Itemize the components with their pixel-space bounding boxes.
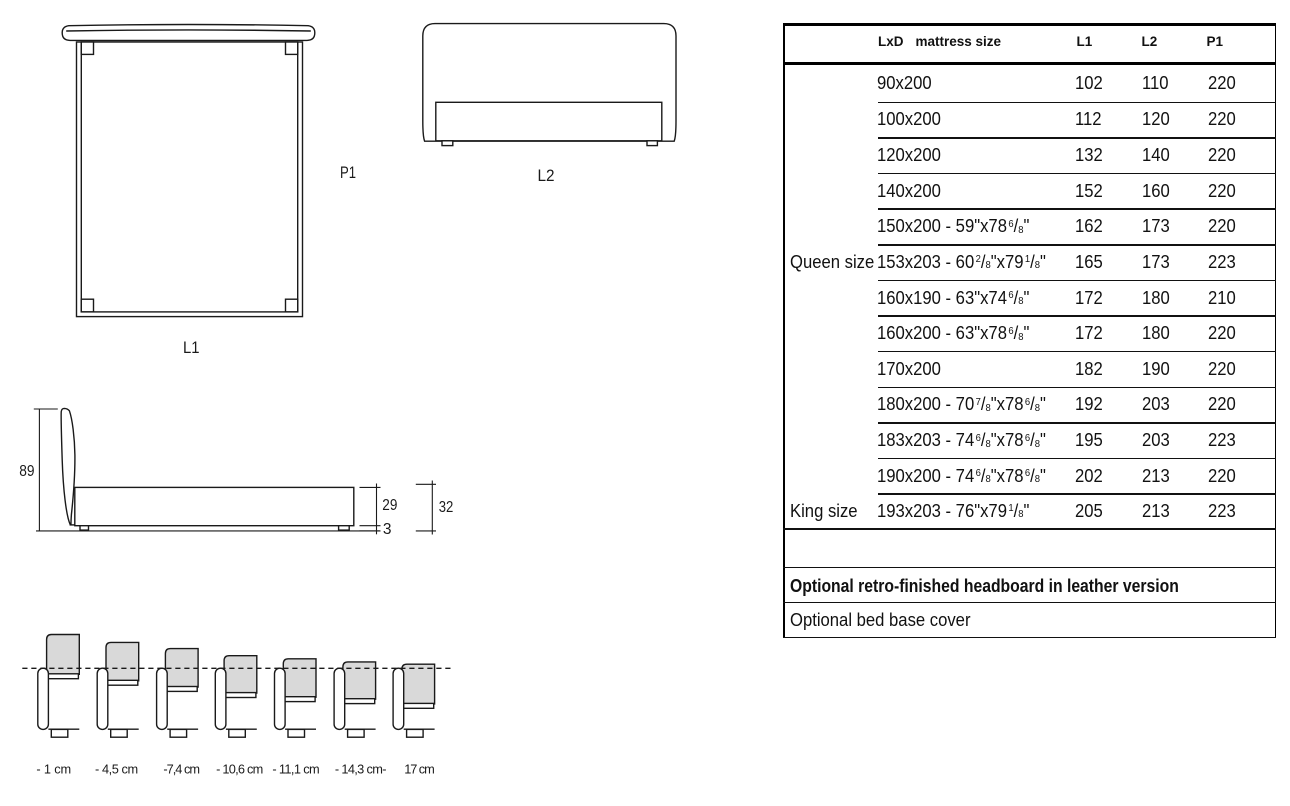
svg-text:- 4,5 cm: - 4,5 cm <box>95 762 138 777</box>
svg-text:17 cm: 17 cm <box>404 762 435 777</box>
svg-text:P1: P1 <box>340 163 356 182</box>
svg-text:L1: L1 <box>183 338 200 357</box>
svg-text:89: 89 <box>19 463 34 480</box>
svg-text:- 1 cm: - 1 cm <box>36 762 71 777</box>
svg-text:32: 32 <box>439 499 454 516</box>
svg-text:29: 29 <box>382 497 397 514</box>
svg-text:L2: L2 <box>538 166 555 185</box>
svg-text:3: 3 <box>383 521 392 538</box>
svg-text:- 14,3 cm-: - 14,3 cm- <box>335 762 387 777</box>
svg-text:- 10,6 cm: - 10,6 cm <box>216 762 263 777</box>
svg-text:-7,4 cm: -7,4 cm <box>163 762 200 777</box>
svg-text:- 11,1 cm: - 11,1 cm <box>272 762 319 777</box>
